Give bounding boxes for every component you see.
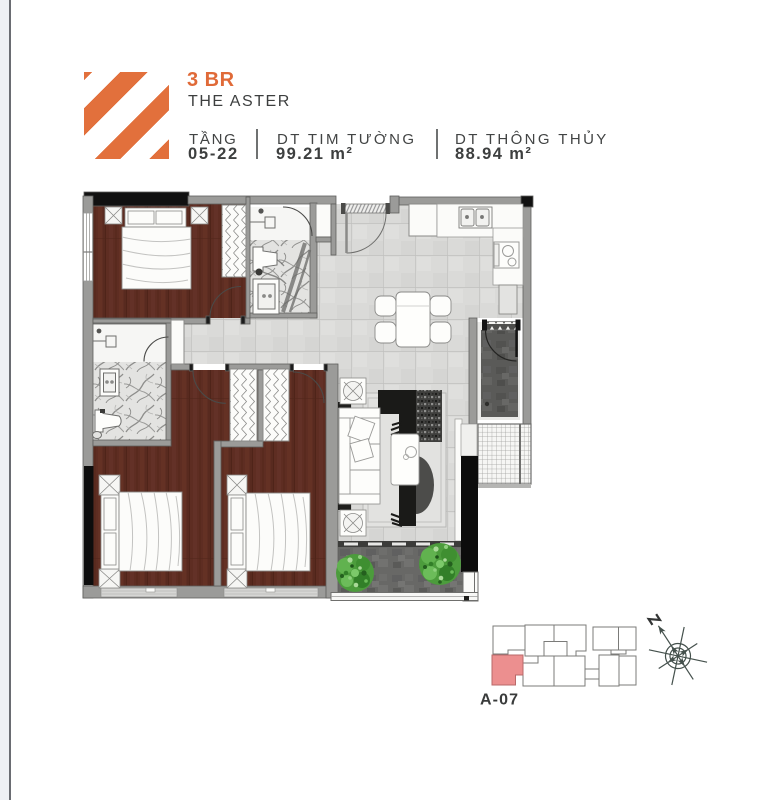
svg-text:A-07: A-07: [480, 692, 519, 709]
